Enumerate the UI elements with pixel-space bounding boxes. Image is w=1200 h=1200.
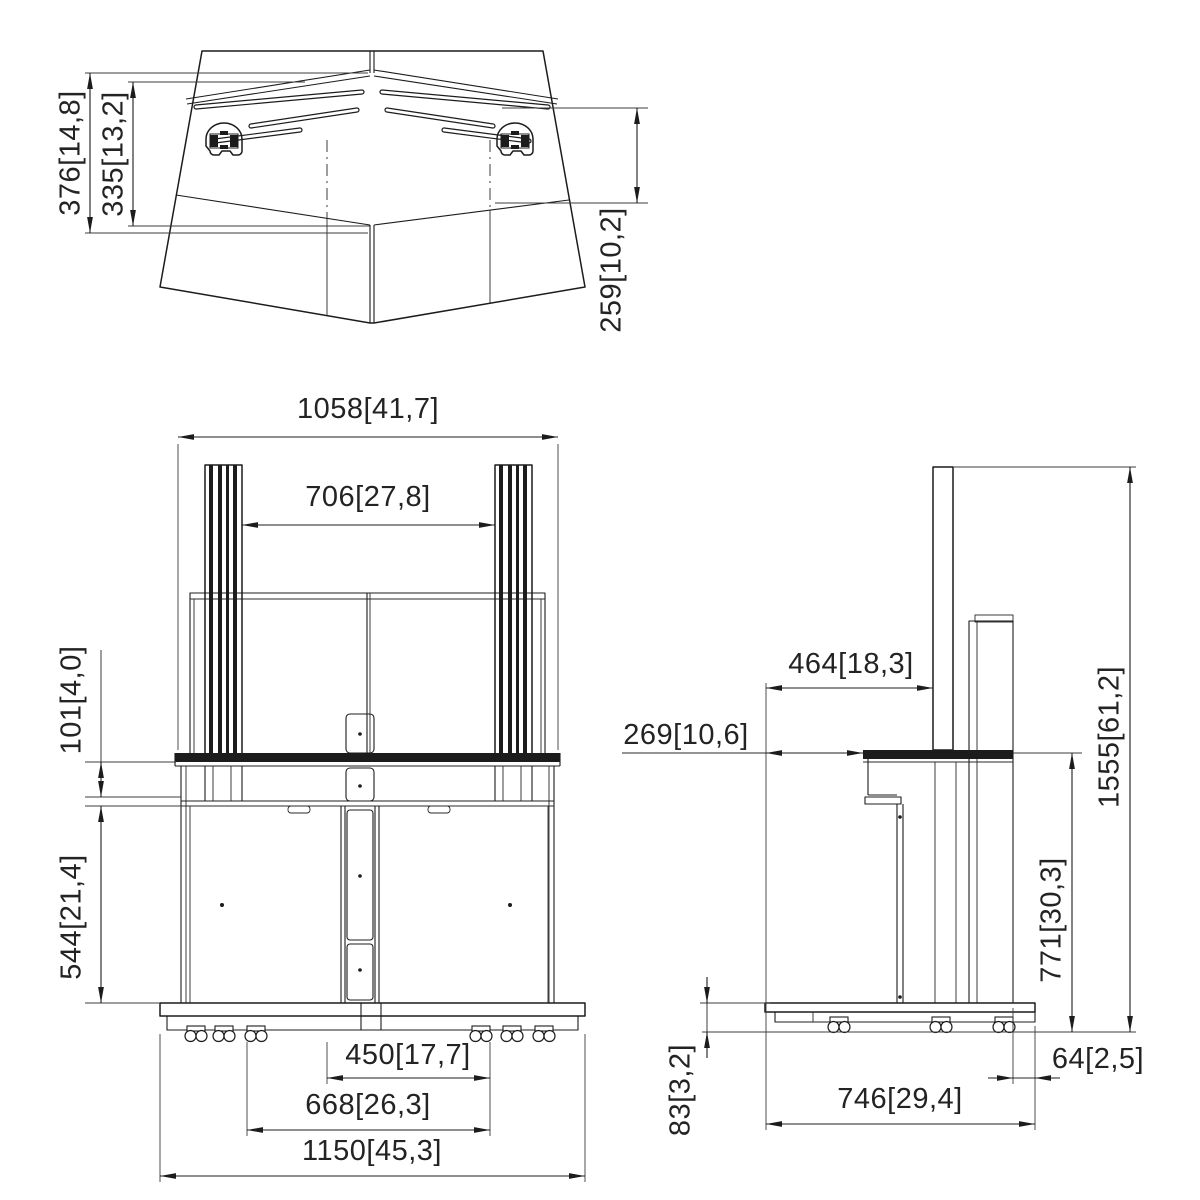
dim-label-771: 771[30,3] bbox=[1036, 857, 1068, 982]
dim-label-64: 64[2,5] bbox=[1052, 1043, 1144, 1075]
dim-771: 771[30,3] bbox=[1013, 753, 1082, 1032]
dim-label-544: 544[21,4] bbox=[56, 854, 88, 979]
dim-464: 464[18,3] bbox=[766, 648, 933, 688]
dim-label-1058: 1058[41,7] bbox=[297, 393, 439, 425]
dim-label-1555: 1555[61,2] bbox=[1094, 666, 1126, 808]
front-back-panel bbox=[190, 593, 545, 755]
dim-label-269: 269[10,6] bbox=[623, 719, 748, 751]
front-cabinet bbox=[175, 753, 560, 1003]
top-view: 376[14,8] 335[13,2] 259[10,2] bbox=[55, 51, 648, 333]
dim-label-706: 706[27,8] bbox=[305, 481, 430, 513]
dim-label-83: 83[3,2] bbox=[665, 1044, 697, 1136]
dim-706: 706[27,8] bbox=[242, 481, 495, 525]
dim-label-450: 450[17,7] bbox=[345, 1039, 470, 1071]
side-back-panel bbox=[969, 615, 1013, 1003]
side-column bbox=[933, 467, 953, 750]
dim-label-101: 101[4,0] bbox=[56, 646, 88, 755]
dim-label-668: 668[26,3] bbox=[305, 1089, 430, 1121]
dim-544: 544[21,4] bbox=[56, 806, 181, 1003]
dim-label-464: 464[18,3] bbox=[788, 648, 913, 680]
dim-269: 269[10,6] bbox=[622, 719, 863, 753]
dim-label-746: 746[29,4] bbox=[837, 1083, 962, 1115]
dim-label-335: 335[13,2] bbox=[98, 91, 130, 216]
front-view: 1058[41,7] 706[27,8] 101[4,0] 544[21,4] … bbox=[56, 393, 585, 1182]
top-outline bbox=[160, 51, 585, 323]
dimensional-drawing: 376[14,8] 335[13,2] 259[10,2] bbox=[0, 0, 1200, 1200]
side-view: 464[18,3] 269[10,6] 1555[61,2] 771[30,3]… bbox=[622, 467, 1144, 1136]
side-cabinet bbox=[863, 750, 1013, 1003]
dim-label-1150: 1150[45,3] bbox=[302, 1135, 442, 1167]
dim-101: 101[4,0] bbox=[56, 646, 181, 797]
dimensional-drawing-page: 376[14,8] 335[13,2] 259[10,2] bbox=[0, 0, 1200, 1200]
dim-label-376: 376[14,8] bbox=[55, 90, 87, 215]
side-casters bbox=[828, 1017, 1015, 1033]
dim-83: 83[3,2] bbox=[665, 977, 770, 1136]
dim-450: 450[17,7] bbox=[327, 1039, 490, 1136]
dim-label-259: 259[10,2] bbox=[596, 207, 628, 332]
